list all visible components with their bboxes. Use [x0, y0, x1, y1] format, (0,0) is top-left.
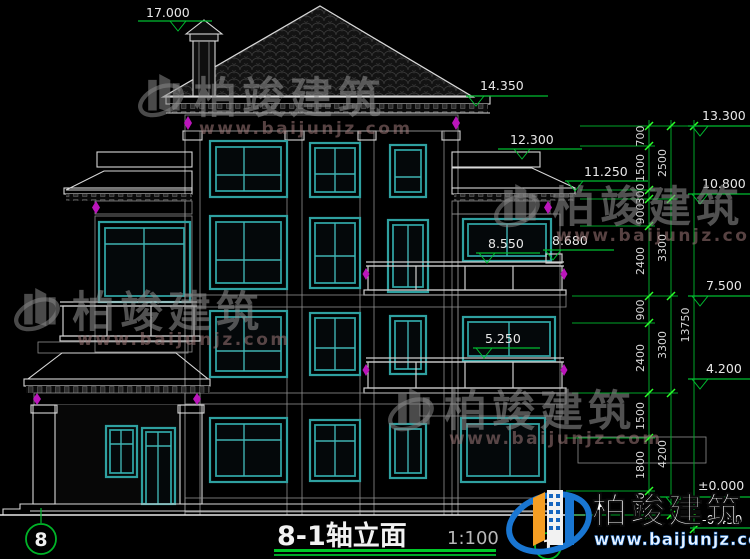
watermark-url: www.baijunjz.com — [199, 119, 413, 139]
title-underline — [274, 549, 496, 552]
title-scale: 1:100 — [447, 528, 499, 549]
svg-text:17.000: 17.000 — [146, 5, 190, 20]
dim-label-total: 13750 — [679, 308, 692, 343]
watermark-url: www.baijunjz.com — [449, 429, 663, 449]
svg-text:5.250: 5.250 — [485, 331, 521, 346]
window — [310, 218, 360, 288]
svg-text:±0.000: ±0.000 — [698, 478, 744, 493]
window — [310, 143, 360, 197]
svg-text:7.500: 7.500 — [706, 278, 742, 293]
dim-label: 900 — [634, 300, 647, 321]
watermark-url: www.baijunjz.com — [556, 226, 750, 246]
balcony-door — [390, 316, 426, 374]
svg-text:11.250: 11.250 — [584, 164, 628, 179]
porch-window — [106, 426, 137, 477]
axis-label: 8 — [34, 529, 47, 551]
window — [210, 418, 287, 482]
svg-text:8.550: 8.550 — [488, 236, 524, 251]
window — [310, 420, 360, 481]
watermark-brand: 柏竣建筑 — [194, 74, 386, 124]
logo-building-blue — [565, 497, 574, 545]
dim-label: 1800 — [634, 451, 647, 479]
window — [210, 216, 287, 289]
dim-label: 2500 — [656, 149, 669, 177]
cad-elevation-drawing: 700 1500 300 900 2400 900 2400 1500 1800… — [0, 0, 750, 559]
title-text: 8-1轴立面 — [277, 520, 407, 552]
svg-text:4.200: 4.200 — [706, 361, 742, 376]
porch-door — [142, 428, 175, 504]
dim-label: 2400 — [634, 247, 647, 275]
porch-dentils — [26, 386, 210, 393]
window — [310, 313, 360, 375]
drawing-canvas: 700 1500 300 900 2400 900 2400 1500 1800… — [0, 0, 750, 559]
svg-text:14.350: 14.350 — [480, 78, 524, 93]
window — [390, 424, 426, 478]
logo-url-text: www.baijunjz.com — [594, 530, 750, 549]
svg-text:12.300: 12.300 — [510, 132, 554, 147]
logo-building-orange — [533, 492, 545, 546]
logo-building-white — [547, 490, 563, 545]
dim-label: 2400 — [634, 344, 647, 372]
watermark-url: www.baijunjz.com — [77, 330, 291, 350]
dim-label: 1500 — [634, 154, 647, 182]
dim-label: 700 — [634, 126, 647, 147]
balcony-door — [388, 220, 428, 292]
dim-label: 3300 — [656, 331, 669, 359]
window — [390, 145, 426, 197]
logo-brand-text: 柏竣建筑 — [592, 491, 744, 532]
title-underline-2 — [274, 554, 496, 556]
left-wing-dentils — [66, 194, 192, 201]
window — [210, 141, 287, 197]
svg-text:13.300: 13.300 — [702, 108, 746, 123]
